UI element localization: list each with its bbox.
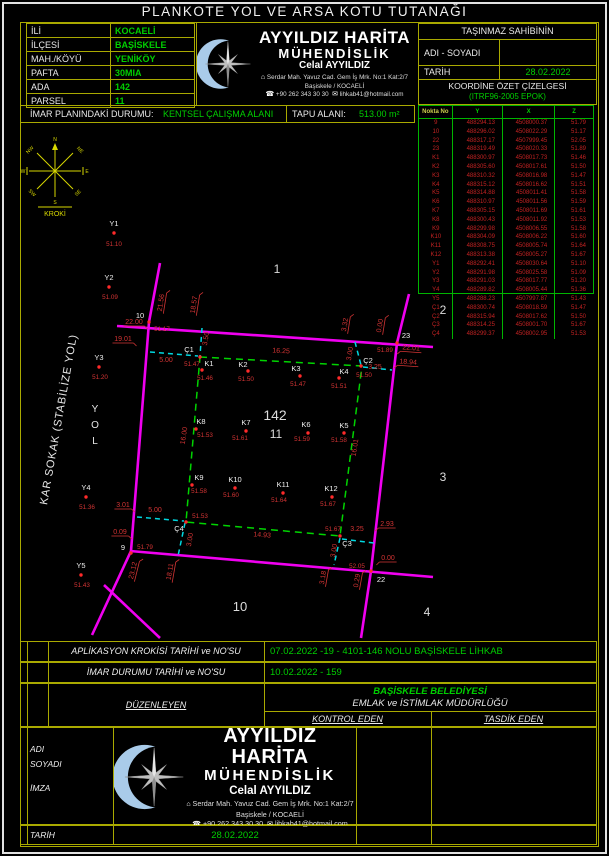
svg-text:51.79: 51.79 (137, 544, 153, 551)
directorate-label: EMLAK ve İSTİMLAK MÜDÜRLÜĞÜ (264, 698, 596, 709)
address-icon: ⌂ (261, 74, 265, 81)
imar-label: İMAR PLANINDAKİ DURUMU: (30, 106, 154, 122)
coord-row: Ç2488315.944508017.6251.50 (419, 313, 593, 322)
imar-durumu-label: İMAR DURUMU TARİHİ ve NO'SU (48, 667, 264, 677)
offset-line (355, 342, 361, 365)
svg-text:51.46: 51.46 (197, 375, 213, 382)
coord-row: Ç4488299.374508002.9551.53 (419, 330, 593, 339)
svg-text:K1: K1 (204, 359, 213, 368)
svg-text:3.01: 3.01 (116, 502, 130, 509)
svg-text:3.00: 3.00 (346, 346, 355, 361)
address-icon: ⌂ (186, 801, 190, 808)
svg-text:3.25: 3.25 (368, 364, 382, 371)
svg-text:3.00: 3.00 (330, 543, 339, 558)
dimension-label: 3.00 (346, 346, 355, 361)
survey-point: K1251.67 (320, 484, 338, 508)
svg-text:K9: K9 (194, 473, 203, 482)
company-name-line1: AYYILDIZ HARİTA (184, 726, 356, 768)
svg-text:K12: K12 (324, 484, 337, 493)
company-logo-bottom: AYYILDIZ HARİTA MÜHENDİSLİK Celal AYYILD… (114, 728, 356, 826)
svg-text:51.09: 51.09 (102, 294, 118, 301)
dimension-label: 3.01 (114, 502, 134, 512)
dimension-label: 18.94 (394, 358, 419, 370)
svg-text:K3: K3 (291, 364, 300, 373)
dimension-label: 18.11 (165, 558, 179, 583)
coord-row: K2488305.604508017.6151.50 (419, 163, 593, 172)
coord-row: K10488304.094508006.2251.60 (419, 233, 593, 242)
coord-row: K7488305.154508011.6951.61 (419, 207, 593, 216)
compass-ne: NE (75, 146, 85, 156)
coord-row: K12488313.384508005.2751.67 (419, 251, 593, 260)
tasdik-eden-label: TASDİK EDEN (431, 714, 596, 724)
survey-point: K1051.60 (223, 475, 242, 499)
coord-row: Ç1488300.744508018.5951.47 (419, 304, 593, 313)
coord-row: 10488296.024508022.2951.17 (419, 128, 593, 137)
coord-header-nokta: Nokta No (419, 106, 452, 119)
svg-text:51.47: 51.47 (290, 381, 306, 388)
company-name-line2: MÜHENDİSLİK (184, 768, 356, 784)
svg-text:51.20: 51.20 (92, 374, 108, 381)
yol-letter: O (91, 420, 99, 431)
company-address2: Başiskele / KOCAELİ (305, 83, 365, 90)
svg-text:K5: K5 (339, 421, 348, 430)
tarih-value: 28.02.2022 (114, 830, 356, 841)
coord-row: K6488310.974508011.5651.59 (419, 198, 593, 207)
dimension-label: 16.01 (351, 438, 361, 457)
survey-point: Ç151.47 (184, 345, 202, 368)
parcel-info-row: ADA142 (27, 80, 195, 94)
crescent-star-logo (197, 26, 251, 102)
dimension-label: 3.00 (330, 543, 339, 558)
coord-row: 9488294.134508000.3751.79 (419, 119, 593, 128)
dimension-label: 18.57 (189, 291, 203, 316)
dimension-label: 0.09 (111, 529, 131, 539)
svg-text:51.67: 51.67 (325, 526, 341, 533)
adi-label: ADI (30, 744, 44, 754)
tarih-row: TARİH 28.02.2022 (20, 825, 597, 845)
survey-point: K651.59 (294, 420, 310, 443)
parcel-info-table: İLİKOCAELİİLÇESİBAŞİSKELEMAH./KÖYÜYENİKÖ… (26, 23, 195, 105)
svg-text:2.93: 2.93 (380, 521, 394, 528)
tapu-value: 513.00 m² (359, 106, 400, 122)
dimension-label: 3.32 (341, 313, 354, 335)
svg-text:23: 23 (402, 331, 410, 340)
company-address1: Serdar Mah. Yavuz Cad. Gem İş Mrk. No:1 … (267, 74, 408, 81)
compass-w: W (21, 169, 26, 175)
svg-text:Ç1: Ç1 (184, 345, 194, 354)
svg-text:22.00: 22.00 (125, 319, 143, 326)
coord-row: Y3488291.034508017.7751.20 (419, 277, 593, 286)
approval-header-row: DÜZENLEYEN BAŞİSKELE BELEDİYESİ EMLAK ve… (20, 683, 597, 727)
company-email: lihkab41@hotmail.com (340, 91, 404, 98)
coord-table-title: KOORDİNE ÖZET ÇİZELGESİ (419, 81, 596, 92)
svg-text:5.00: 5.00 (148, 507, 162, 514)
svg-text:Y4: Y4 (81, 483, 90, 492)
svg-text:3.25: 3.25 (350, 526, 364, 533)
coord-header-z: Z (555, 106, 593, 119)
survey-point: K451.51 (331, 367, 348, 390)
coord-row: Y2488291.984508025.5851.09 (419, 269, 593, 278)
mail-icon: ✉ (332, 91, 338, 98)
svg-text:9: 9 (121, 543, 125, 552)
survey-point: K351.47 (290, 364, 306, 388)
svg-text:10: 10 (136, 311, 144, 320)
coord-row: K8488300.434508011.9251.53 (419, 216, 593, 225)
dimension-label: 0.00 (376, 314, 389, 336)
dimension-label: 3.25 (368, 364, 382, 371)
coord-row: K4488315.124508016.6251.51 (419, 181, 593, 190)
kroki-label: KROKİ (44, 209, 66, 218)
svg-text:51.43: 51.43 (74, 582, 90, 589)
coord-row: 23488319.494508020.3351.89 (419, 145, 593, 154)
compass-n: N (53, 137, 57, 143)
svg-text:K4: K4 (339, 367, 348, 376)
svg-text:0.00: 0.00 (381, 555, 395, 562)
svg-text:51.67: 51.67 (320, 501, 336, 508)
svg-text:51.50: 51.50 (238, 376, 254, 383)
imza-label: İMZA (30, 783, 50, 793)
survey-point: Y351.20 (92, 353, 108, 381)
survey-point: Y551.43 (74, 561, 90, 589)
survey-point: K851.53 (194, 417, 213, 439)
svg-text:Y3: Y3 (94, 353, 103, 362)
dimension-label: 23.12 (128, 557, 144, 583)
compass-se: SE (74, 188, 83, 197)
survey-point: K551.58 (331, 421, 348, 444)
dimension-label: 0.00 (376, 555, 396, 565)
company-address1: Serdar Mah. Yavuz Cad. Gem İş Mrk. No:1 … (193, 799, 354, 808)
survey-point: K1151.64 (271, 480, 289, 504)
owner-date-value: 28.02.2022 (500, 66, 596, 79)
coord-row: K11488308.754508005.7451.64 (419, 242, 593, 251)
coord-row: Y5488288.234507997.8751.43 (419, 295, 593, 304)
survey-point: K751.61 (232, 418, 250, 442)
compass-nw: NW (25, 145, 35, 155)
coordinate-table: Nokta No Y X Z 9488294.134508000.3751.79… (418, 105, 594, 294)
aplikasyon-value: 07.02.2022 -19 - 4101-146 NOLU BAŞİSKELE… (270, 646, 592, 657)
coord-row: K5488314.884508011.4151.58 (419, 189, 593, 198)
survey-point: K251.50 (238, 360, 254, 383)
coord-table-body: 9488294.134508000.3751.7910488296.024508… (419, 119, 593, 339)
owner-name-label: ADI - SOYADI (419, 40, 500, 65)
aplikasyon-row: APLİKASYON KROKİSİ TARİHİ ve NO'SU 07.02… (20, 641, 597, 662)
compass-e: E (85, 169, 89, 175)
svg-text:14.93: 14.93 (253, 531, 271, 539)
dimension-label: 3.25 (350, 526, 364, 533)
company-person: Celal AYYILDIZ (184, 785, 356, 797)
svg-text:K6: K6 (301, 420, 310, 429)
svg-text:Y5: Y5 (76, 561, 85, 570)
svg-text:16.25: 16.25 (272, 348, 290, 356)
coord-row: K9488299.984508006.5551.58 (419, 225, 593, 234)
block-number: 4 (424, 605, 431, 619)
block-number: 11 (270, 427, 283, 441)
svg-text:51.59: 51.59 (294, 436, 310, 443)
parcel-info-row: İLİKOCAELİ (27, 24, 195, 38)
company-address2: Başiskele / KOCAELİ (236, 810, 304, 819)
soyadi-label: SOYADI (30, 759, 62, 769)
street-name-label: KAR SOKAK (STABİLİZE YOL) (37, 333, 80, 506)
yol-letter: L (92, 436, 98, 447)
dimension-label: 5.00 (148, 507, 162, 514)
survey-point: Y451.36 (79, 483, 95, 511)
road-line (104, 585, 160, 638)
svg-text:19.01: 19.01 (114, 336, 132, 343)
svg-text:51.58: 51.58 (331, 437, 347, 444)
coord-row: Y4488289.824508005.4451.36 (419, 286, 593, 295)
survey-point: Y251.09 (102, 273, 118, 301)
parcel-info-row: İLÇESİBAŞİSKELE (27, 38, 195, 52)
svg-text:3.50: 3.50 (202, 331, 211, 346)
dimension-label: 3.50 (202, 331, 211, 346)
coord-header-x: X (502, 106, 554, 119)
aplikasyon-label: APLİKASYON KROKİSİ TARİHİ ve NO'SU (48, 646, 264, 656)
imar-row: İMAR PLANINDAKİ DURUMU: KENTSEL ÇALIŞMA … (20, 105, 415, 123)
svg-text:51.60: 51.60 (223, 492, 239, 499)
svg-text:16.01: 16.01 (351, 438, 361, 457)
dimension-label: 16.00 (180, 426, 190, 445)
kontrol-eden-label: KONTROL EDEN (264, 714, 431, 724)
offset-line (137, 517, 184, 521)
svg-text:K8: K8 (196, 417, 205, 426)
dimension-label: 14.93 (253, 531, 271, 539)
dimension-label: 19.01 (113, 336, 137, 346)
imar-durumu-row: İMAR DURUMU TARİHİ ve NO'SU 10.02.2022 -… (20, 662, 597, 683)
signature-row: ADI SOYADI İMZA AYYILDIZ HARİTA MÜHENDİS… (20, 727, 597, 825)
imar-durumu-value: 10.02.2022 - 159 (270, 667, 592, 678)
coord-row: Ç3488314.254508001.7051.67 (419, 321, 593, 330)
block-number: 10 (233, 599, 247, 614)
company-person: Celal AYYILDIZ (251, 61, 418, 72)
svg-text:3.00: 3.00 (186, 532, 195, 547)
plankote-document: PLANKOTE YOL VE ARSA KOTU TUTANAĞI İLİKO… (0, 0, 609, 856)
svg-text:5.00: 5.00 (159, 357, 173, 364)
owner-box: TAŞINMAZ SAHİBİNİN ADI - SOYADI TARİH 28… (418, 23, 597, 105)
svg-text:51.36: 51.36 (79, 504, 95, 511)
dimension-label: 21.56 (156, 289, 170, 314)
svg-text:51.58: 51.58 (191, 488, 207, 495)
tarih-label: TARİH (30, 830, 55, 840)
company-name-line2: MÜHENDİSLİK (251, 47, 418, 61)
block-number: 1 (274, 262, 281, 276)
svg-text:22: 22 (377, 575, 385, 584)
svg-text:Ç4: Ç4 (174, 524, 184, 533)
yol-letter: Y (92, 404, 99, 415)
block-number: 3 (440, 470, 447, 484)
svg-text:52.05: 52.05 (349, 563, 365, 570)
svg-text:Ç2: Ç2 (363, 356, 373, 365)
company-phone: +90 262 343 30 30 (276, 91, 329, 98)
survey-point: K951.58 (190, 473, 207, 495)
phone-icon: ☎ (265, 91, 274, 98)
dimension-label: 2.93 (375, 521, 395, 531)
parcel-info-row: MAH./KÖYÜYENİKÖY (27, 52, 195, 66)
coord-row: 22488317.174507999.4552.05 (419, 137, 593, 146)
svg-text:51.50: 51.50 (356, 372, 372, 379)
svg-text:51.51: 51.51 (331, 383, 347, 390)
crescent-star-logo (114, 730, 184, 824)
coord-row: K3488310.324508016.9851.47 (419, 172, 593, 181)
dimension-label: 16.25 (272, 348, 290, 356)
svg-text:K7: K7 (241, 418, 250, 427)
svg-text:51.10: 51.10 (106, 241, 122, 248)
svg-text:Y2: Y2 (104, 273, 113, 282)
coord-header-y: Y (452, 106, 502, 119)
company-logo-top: AYYILDIZ HARİTA MÜHENDİSLİK Celal AYYILD… (196, 23, 419, 105)
company-logo: AYYILDIZ HARİTA MÜHENDİSLİK Celal AYYILD… (197, 26, 418, 102)
svg-text:Ç3: Ç3 (342, 539, 352, 548)
svg-text:51.53: 51.53 (197, 432, 213, 439)
coord-header-row: Nokta No Y X Z (419, 106, 593, 119)
page-title: PLANKOTE YOL VE ARSA KOTU TUTANAĞI (0, 4, 609, 19)
parcel-info-row: PAFTA30MIA (27, 66, 195, 80)
compass-rose: N NE E SE S SW W NW KROKİ (21, 137, 90, 218)
svg-text:K2: K2 (238, 360, 247, 369)
parcel-info-body: İLİKOCAELİİLÇESİBAŞİSKELEMAH./KÖYÜYENİKÖ… (27, 24, 195, 108)
coord-table-subtitle: (ITRF96-2005 EPOK) (419, 92, 596, 102)
company-name-line1: AYYILDIZ HARİTA (251, 29, 418, 47)
svg-text:K11: K11 (277, 480, 290, 489)
coord-row: Y1488292.414508030.6451.10 (419, 260, 593, 269)
svg-text:51.47: 51.47 (184, 361, 200, 368)
survey-point: Y151.10 (106, 219, 122, 248)
svg-text:K10: K10 (228, 475, 241, 484)
svg-text:Y1: Y1 (109, 219, 118, 228)
owner-date-label: TARİH (419, 66, 500, 79)
municipality-label: BAŞİSKELE BELEDİYESİ (264, 686, 596, 697)
block-number: 142 (263, 407, 287, 423)
svg-text:51.53: 51.53 (192, 513, 208, 520)
svg-text:51.17: 51.17 (154, 326, 170, 333)
imar-value: KENTSEL ÇALIŞMA ALANI (163, 106, 273, 122)
dimension-label: 5.00 (159, 357, 173, 364)
svg-text:16.00: 16.00 (180, 426, 190, 445)
compass-s: S (53, 200, 57, 206)
svg-text:51.64: 51.64 (271, 497, 287, 504)
compass-sw: SW (27, 188, 37, 198)
dimension-label: 3.00 (186, 532, 195, 547)
duzenleyen-label: DÜZENLEYEN (48, 700, 264, 710)
coord-row: K1488300.974508017.7351.46 (419, 154, 593, 163)
imar-divider (286, 106, 287, 122)
svg-text:0.09: 0.09 (113, 529, 127, 536)
svg-text:51.61: 51.61 (232, 435, 248, 442)
svg-text:51.89: 51.89 (377, 347, 393, 354)
tapu-label: TAPU ALANI: (292, 106, 346, 122)
owner-header: TAŞINMAZ SAHİBİNİN (419, 24, 596, 40)
